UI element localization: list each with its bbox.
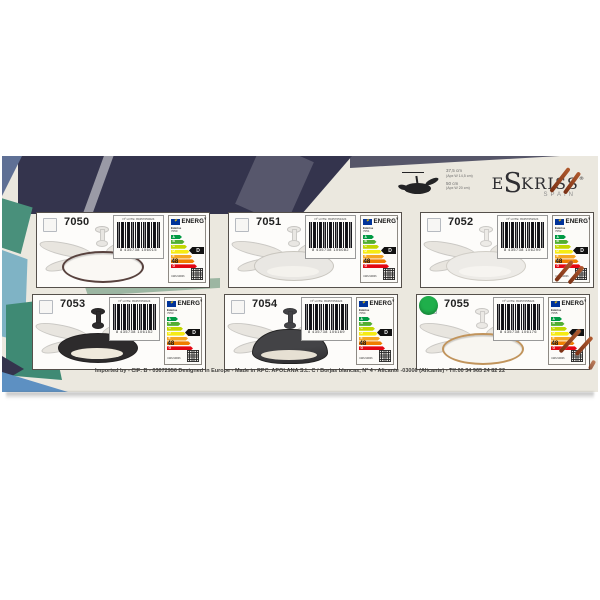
ean-number: 8 435738 106299 <box>498 248 547 252</box>
barcode-sticker: Nº LOTE: 80457055024 8 435738 106176 <box>493 297 544 341</box>
product-panel-7054: 7054 Nº LOTE: 80457054024 8 435738 10616… <box>224 294 398 370</box>
energy-label-model: 7052 <box>555 230 587 233</box>
box-art-navy-wedge <box>350 156 560 168</box>
box-drop-shadow <box>6 392 594 399</box>
ean-number: 8 435738 106169 <box>302 330 351 334</box>
eu-flag-icon <box>171 219 180 225</box>
barcode-sticker: Nº LOTE: 80457053024 8 435738 106152 <box>109 297 160 341</box>
product-panel-7051: 7051 Nº LOTE: 80457051024 8 435738 10608… <box>228 212 402 288</box>
barcode-sticker: Nº LOTE: 80457054024 8 435738 106169 <box>301 297 352 341</box>
energy-label: ENERGY Eskriss 7050 ABCDEFG D 48kWh/1000… <box>168 215 206 283</box>
energy-label-header: ENERGY <box>363 218 395 225</box>
ean-number: 8 435738 106176 <box>494 330 543 334</box>
eu-flag-icon <box>363 219 372 225</box>
barcode-bars <box>501 222 544 248</box>
energy-label-header: ENERGY <box>167 300 199 307</box>
energy-title: ENERGY <box>182 217 207 225</box>
energy-consumption: 48kWh/1000h <box>168 341 181 363</box>
energy-label-header: ENERGY <box>551 300 583 307</box>
fan-silhouette-icon <box>400 172 442 200</box>
dimension-note: (Apx W 20 cm) <box>446 186 473 190</box>
product-panel-7052: 7052 Nº LOTE: 80457052024 8 435738 10629… <box>420 212 594 288</box>
barcode-bars <box>305 304 348 330</box>
eu-flag-icon <box>551 301 560 307</box>
ean-number: 8 435738 106152 <box>110 330 159 334</box>
energy-title: ENERGY <box>178 299 203 307</box>
lot-number: Nº LOTE: 80457052024 <box>498 217 547 221</box>
eu-flag-icon <box>167 301 176 307</box>
energy-label-model: 7051 <box>363 230 395 233</box>
energy-label: ENERGY Eskriss 7051 ABCDEFG D 48kWh/1000… <box>360 215 398 283</box>
lot-number: Nº LOTE: 80457050024 <box>114 217 163 221</box>
barcode-sticker: Nº LOTE: 80457050024 8 435738 106015 <box>113 215 164 259</box>
product-panel-7055: 7055 Nº LOTE: 80457055024 8 435738 10617… <box>416 294 590 370</box>
energy-title: ENERGY <box>374 217 399 225</box>
qr-code <box>187 350 199 362</box>
barcode-bars <box>497 304 540 330</box>
barcode-bars <box>117 222 160 248</box>
energy-title: ENERGY <box>562 299 587 307</box>
dimension-note: (Apx W 14,5 cm) <box>446 174 473 178</box>
lot-number: Nº LOTE: 80457054024 <box>302 299 351 303</box>
logo-big-s: S <box>504 174 523 194</box>
energy-label-header: ENERGY <box>171 218 203 225</box>
energy-consumption: 48kWh/1000h <box>172 259 185 281</box>
lot-number: Nº LOTE: 80457055024 <box>494 299 543 303</box>
qr-code <box>191 268 203 280</box>
importer-info-line: Imported by - CIF: B - 03072956 Designed… <box>12 368 588 374</box>
energy-label-header: ENERGY <box>555 218 587 225</box>
product-panel-7053: 7053 Nº LOTE: 80457053024 8 435738 10615… <box>32 294 206 370</box>
qr-code <box>379 350 391 362</box>
lot-number: Nº LOTE: 80457051024 <box>306 217 355 221</box>
eu-flag-icon <box>555 219 564 225</box>
barcode-sticker: Nº LOTE: 80457052024 8 435738 106299 <box>497 215 548 259</box>
eu-flag-icon <box>359 301 368 307</box>
dimension-text: 37,5 cm (Apx W 14,5 cm) 50 cm (Apx W 20 … <box>446 168 473 193</box>
energy-label: ENERGY Eskriss 7052 ABCDEFG D 48kWh/1000… <box>552 215 590 283</box>
product-panel-7050: 7050 Nº LOTE: 80457050024 8 435738 10601… <box>36 212 210 288</box>
energy-label: ENERGY Eskriss 7054 ABCDEFG D 48kWh/1000… <box>356 297 394 365</box>
barcode-sticker: Nº LOTE: 80457051024 8 435738 106082 <box>305 215 356 259</box>
energy-label-header: ENERGY <box>359 300 391 307</box>
energy-consumption: 48kWh/1000h <box>364 259 377 281</box>
energy-label: ENERGY Eskriss 7053 ABCDEFG D 48kWh/1000… <box>164 297 202 365</box>
energy-title: ENERGY <box>566 217 591 225</box>
energy-title: ENERGY <box>370 299 395 307</box>
energy-consumption: 48kWh/1000h <box>360 341 373 363</box>
energy-label-model: 7055 <box>551 312 583 315</box>
energy-label-model: 7050 <box>171 230 203 233</box>
green-dot-sticker <box>419 296 438 315</box>
product-box-photo: 37,5 cm (Apx W 14,5 cm) 50 cm (Apx W 20 … <box>0 0 600 600</box>
barcode-bars <box>113 304 156 330</box>
energy-label-model: 7054 <box>359 312 391 315</box>
qr-code <box>383 268 395 280</box>
ean-number: 8 435738 106082 <box>306 248 355 252</box>
registered-mark: ® <box>579 176 584 182</box>
energy-label-model: 7053 <box>167 312 199 315</box>
barcode-bars <box>309 222 352 248</box>
packaging-box-face: 37,5 cm (Apx W 14,5 cm) 50 cm (Apx W 20 … <box>2 156 598 392</box>
ean-number: 8 435738 106015 <box>114 248 163 252</box>
lot-number: Nº LOTE: 80457053024 <box>110 299 159 303</box>
